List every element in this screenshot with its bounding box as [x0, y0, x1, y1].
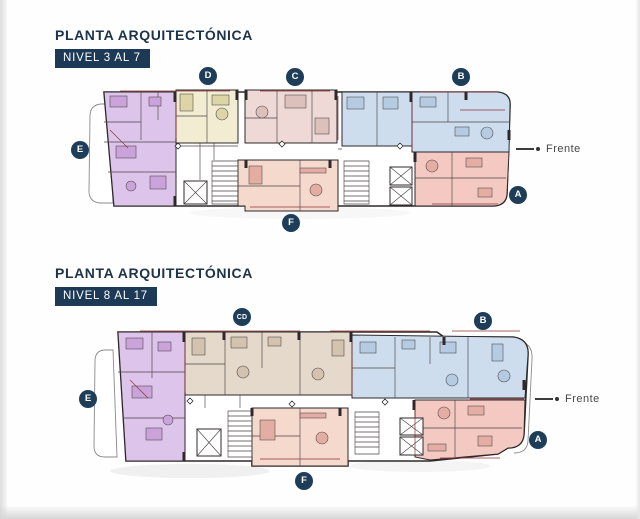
photo-edge-left: [0, 0, 7, 519]
plan2-title: PLANTA ARQUITECTÓNICA: [55, 265, 253, 281]
plan2-drawing: [94, 331, 532, 478]
plan2-unit-badge-cd: CD: [233, 308, 251, 326]
plan1-unit-badge-c: C: [286, 68, 304, 86]
plan2-frente: Frente: [535, 393, 600, 405]
plan2-unit-badge-a: A: [529, 431, 547, 449]
plan1-drawing: [89, 90, 510, 219]
frente-arrow-dot: [536, 147, 540, 151]
photo-edge-right: [635, 0, 640, 519]
plan1-level-badge: NIVEL 3 AL 7: [55, 49, 150, 68]
plan2-unit-badge-f: F: [295, 472, 313, 490]
frente-arrow-dot: [555, 397, 559, 401]
plan1-unit-badge-a: A: [509, 186, 527, 204]
frente-label: Frente: [565, 393, 600, 405]
photo-edge-bottom: [0, 505, 640, 519]
plan1-frente: Frente: [516, 143, 581, 155]
frente-arrow-line: [516, 148, 534, 149]
plan1-title: PLANTA ARQUITECTÓNICA: [55, 27, 253, 43]
page: PLANTA ARQUITECTÓNICA NIVEL 3 AL 7 D C B…: [0, 0, 640, 519]
plan1-unit-badge-d: D: [199, 67, 217, 85]
plan2-unit-badge-e: E: [79, 390, 97, 408]
frente-label: Frente: [546, 143, 581, 155]
frente-arrow-line: [535, 398, 553, 399]
plan1-unit-a: [415, 152, 509, 206]
plan1-unit-badge-b: B: [452, 68, 470, 86]
plan2-unit-badge-b: B: [474, 312, 492, 330]
plan1-unit-badge-f: F: [282, 214, 300, 232]
plan2-level-badge: NIVEL 8 AL 17: [55, 287, 157, 306]
plan2-balcony-outline-left: [94, 350, 117, 457]
plan1-unit-badge-e: E: [71, 141, 89, 159]
